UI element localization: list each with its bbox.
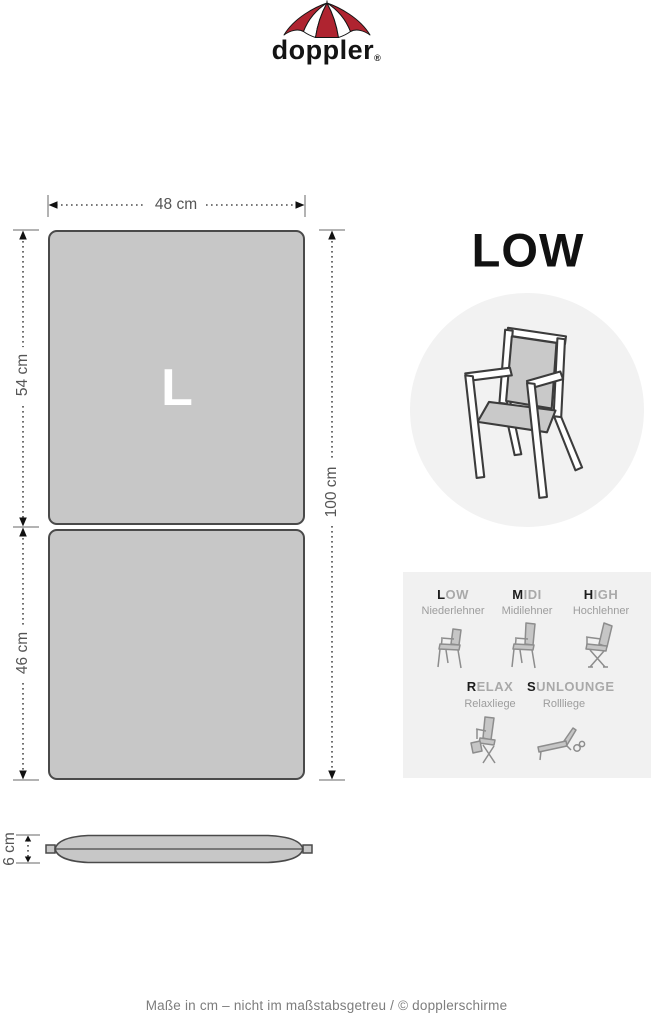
total-length-dimension-label: 100 cm	[323, 460, 341, 525]
types-row-2: RELAX Relaxliege SUNLOUNGE	[403, 680, 651, 764]
chair-relax-icon	[453, 715, 527, 765]
type-item-high: HIGH Hochlehner	[564, 588, 638, 672]
type-sunlounge-subtitle: Rollliege	[527, 698, 601, 710]
product-title: LOW	[472, 223, 585, 278]
type-midi-subtitle: Midilehner	[490, 605, 564, 617]
type-low-subtitle: Niederlehner	[416, 605, 490, 617]
type-high-label: HIGH	[564, 588, 638, 602]
footer-note: Maße in cm – nicht im maßstabsgetreu / ©…	[0, 998, 653, 1013]
type-item-relax: RELAX Relaxliege	[453, 680, 527, 764]
cushion-side-view	[46, 836, 312, 863]
chair-low-icon	[416, 622, 490, 672]
thickness-dimension-label: 6 cm	[1, 825, 19, 873]
type-high-subtitle: Hochlehner	[564, 605, 638, 617]
size-letter: L	[161, 358, 193, 418]
chair-midi-icon	[490, 622, 564, 672]
types-panel: LOW Niederlehner MIDI Midilehner	[403, 572, 651, 778]
width-dimension-label: 48 cm	[146, 196, 206, 214]
back-section-dimension-label: 54 cm	[14, 347, 32, 403]
lounger-icon	[527, 715, 601, 765]
chair-illustration-circle	[410, 293, 644, 527]
types-row-1: LOW Niederlehner MIDI Midilehner	[403, 588, 651, 672]
umbrella-icon	[281, 0, 373, 40]
cushion-seat-section	[48, 529, 305, 780]
seat-section-dimension-label: 46 cm	[14, 625, 32, 681]
type-relax-subtitle: Relaxliege	[453, 698, 527, 710]
type-sunlounge-label: SUNLOUNGE	[527, 680, 601, 694]
brand-wordmark: doppler®	[0, 37, 653, 64]
type-item-midi: MIDI Midilehner	[490, 588, 564, 672]
type-low-label: LOW	[416, 588, 490, 602]
armchair-low-icon	[451, 316, 603, 504]
type-item-sunlounge: SUNLOUNGE Rollliege	[527, 680, 601, 764]
registered-mark: ®	[374, 53, 381, 63]
type-relax-label: RELAX	[453, 680, 527, 694]
chair-high-icon	[564, 622, 638, 672]
type-item-low: LOW Niederlehner	[416, 588, 490, 672]
type-midi-label: MIDI	[490, 588, 564, 602]
page: doppler®	[0, 0, 653, 1020]
doppler-logo: doppler®	[0, 0, 653, 64]
